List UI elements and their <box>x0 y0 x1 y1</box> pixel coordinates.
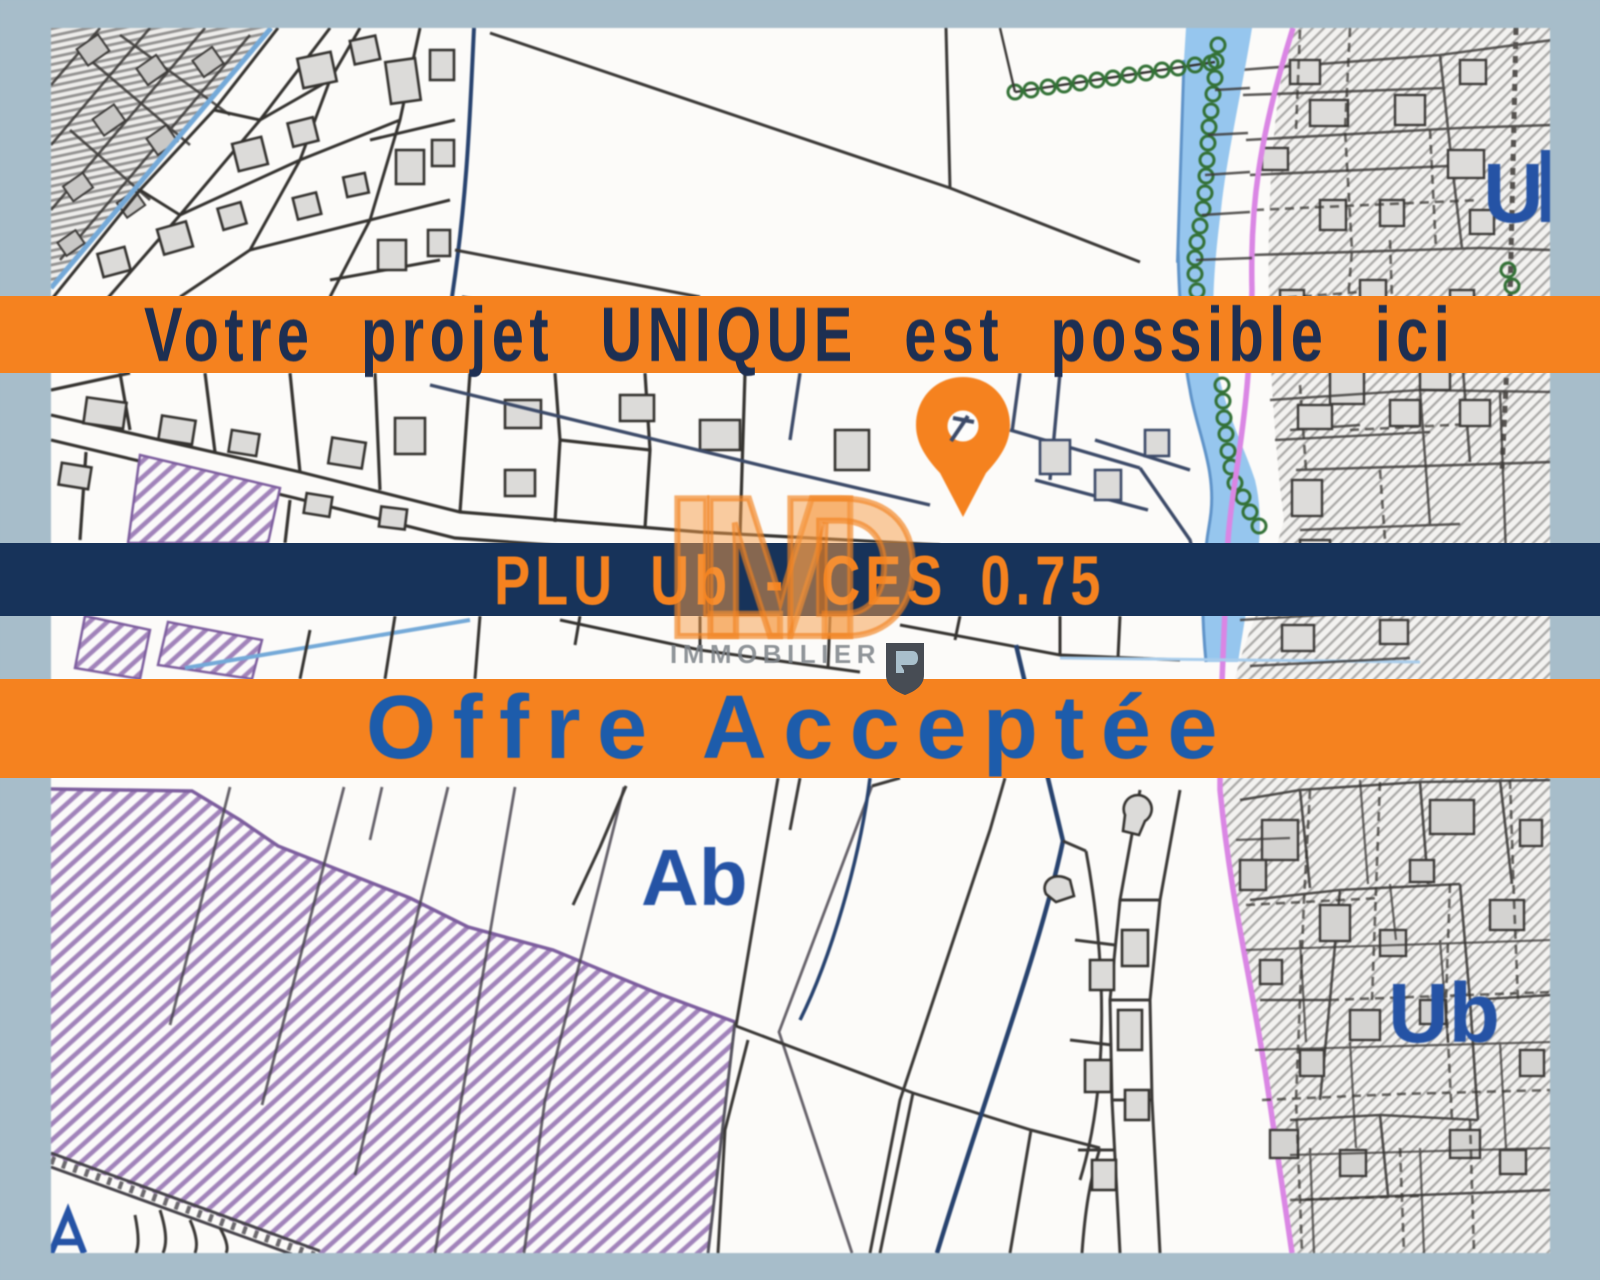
svg-text:Ab: Ab <box>641 833 748 922</box>
svg-text:U: U <box>1483 146 1544 240</box>
svg-text:Ub: Ub <box>1388 966 1500 1060</box>
